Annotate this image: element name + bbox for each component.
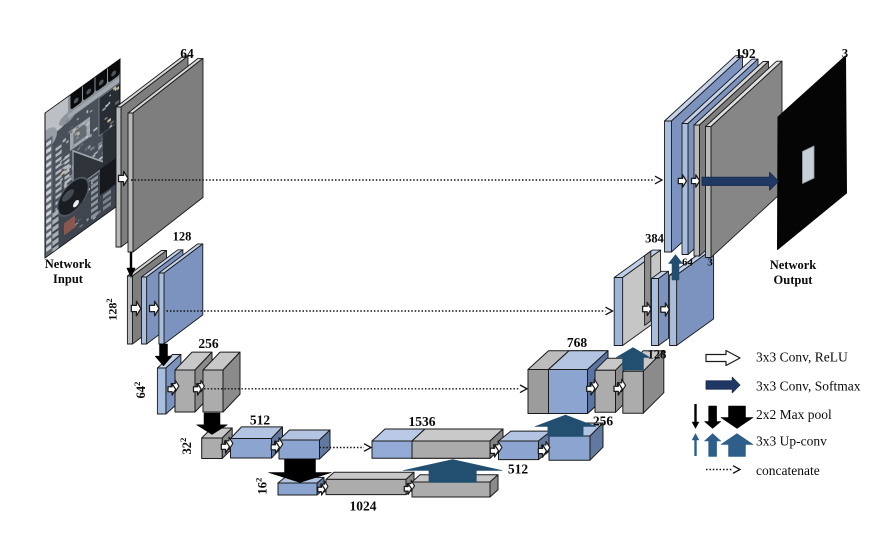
svg-text:3: 3	[842, 47, 848, 61]
svg-text:1536: 1536	[409, 414, 436, 429]
svg-text:256: 256	[198, 336, 219, 351]
svg-text:3x3 Conv, ReLU: 3x3 Conv, ReLU	[756, 350, 848, 365]
svg-text:512: 512	[508, 462, 529, 477]
svg-text:256: 256	[593, 414, 614, 429]
svg-text:3x3 Up-conv: 3x3 Up-conv	[756, 434, 827, 449]
svg-text:768: 768	[567, 335, 588, 350]
svg-text:128: 128	[648, 348, 667, 362]
svg-text:Network: Network	[45, 257, 92, 271]
svg-text:384: 384	[645, 232, 665, 246]
svg-text:1024: 1024	[350, 499, 377, 514]
svg-text:64: 64	[180, 46, 194, 61]
svg-text:3x3 Conv, Softmax: 3x3 Conv, Softmax	[756, 379, 861, 394]
svg-text:64: 64	[682, 257, 694, 269]
svg-text:Network: Network	[770, 258, 817, 272]
svg-text:Output: Output	[774, 273, 814, 287]
svg-text:3: 3	[707, 257, 713, 269]
svg-text:192: 192	[735, 46, 756, 61]
svg-text:2x2 Max pool: 2x2 Max pool	[756, 407, 832, 422]
svg-text:512: 512	[250, 413, 271, 428]
svg-text:128: 128	[173, 230, 192, 244]
svg-text:Input: Input	[53, 272, 84, 286]
svg-text:concatenate: concatenate	[756, 463, 820, 478]
